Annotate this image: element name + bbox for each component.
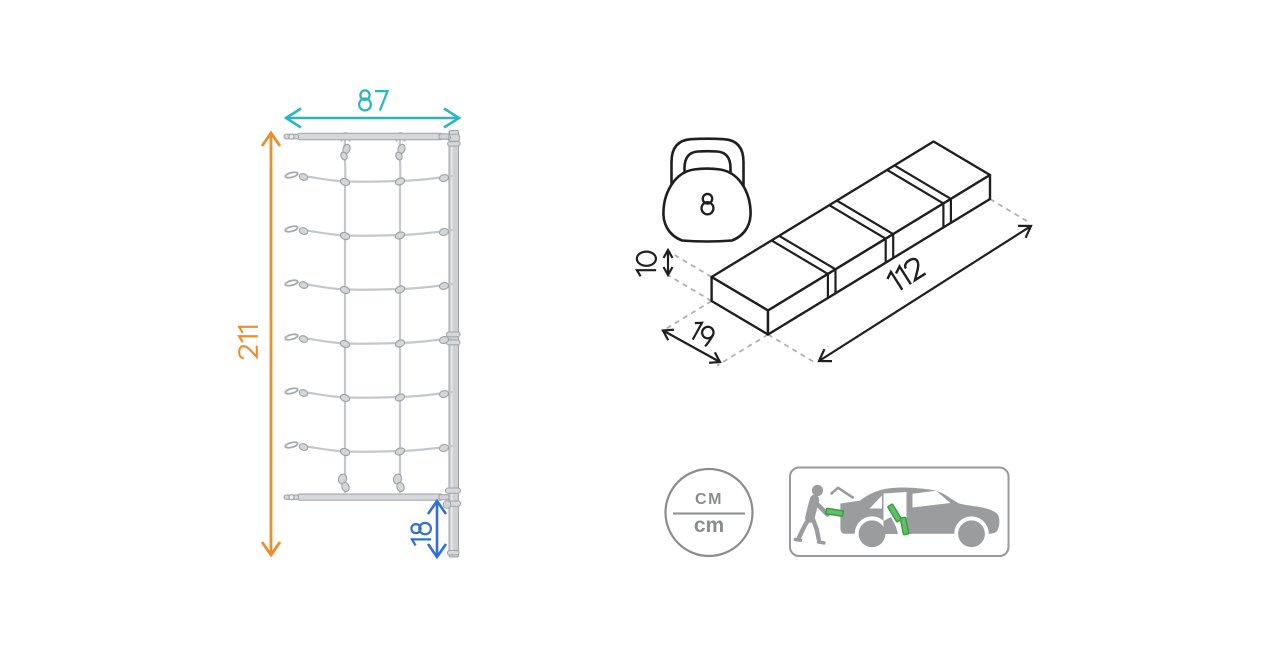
svg-text:cm: cm bbox=[694, 514, 724, 537]
svg-text:CM: CM bbox=[695, 491, 723, 508]
